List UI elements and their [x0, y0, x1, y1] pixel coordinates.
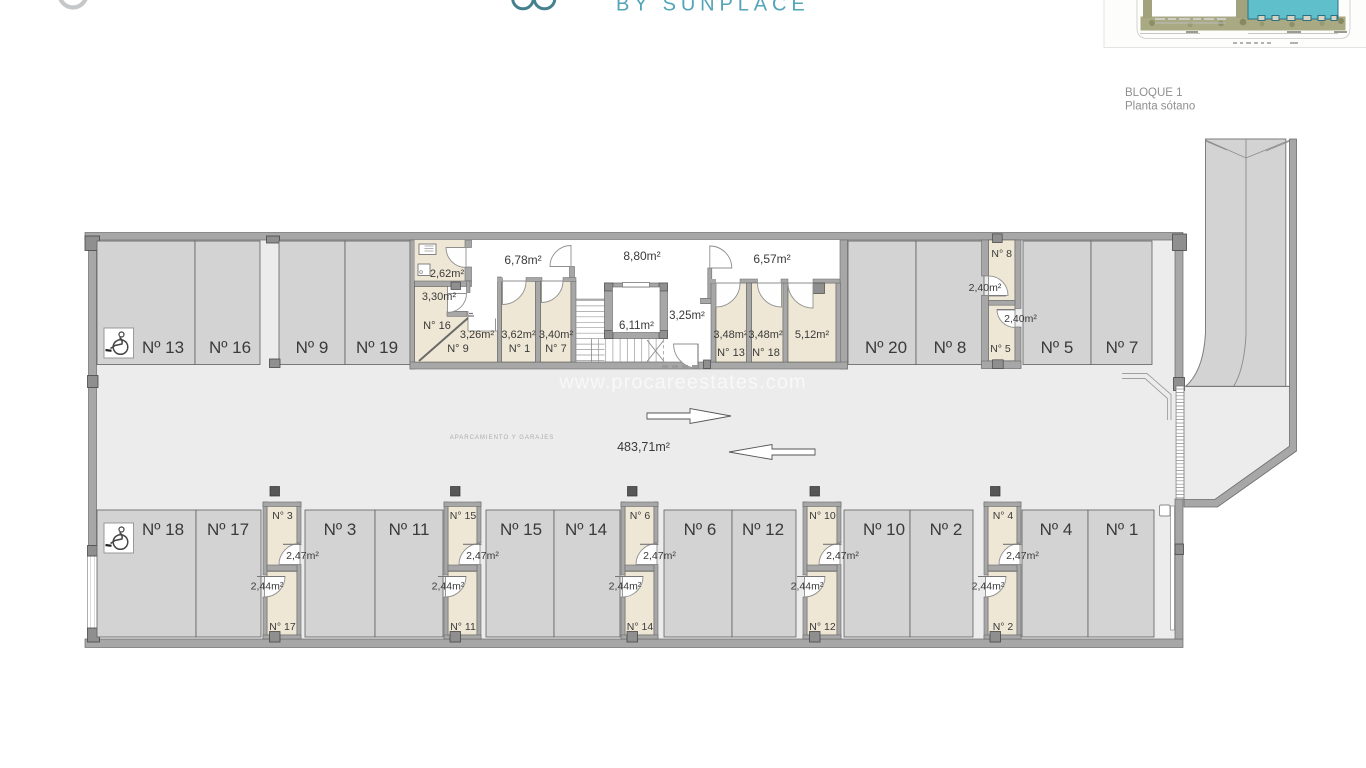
svg-text:BY SUNPLACE: BY SUNPLACE	[616, 0, 810, 16]
svg-text:N° 7: N° 7	[545, 343, 567, 355]
svg-text:483,71m²: 483,71m²	[617, 440, 670, 454]
svg-text:Nº 11: Nº 11	[389, 520, 430, 539]
svg-text:3,30m²: 3,30m²	[422, 291, 457, 303]
svg-text:Nº 17: Nº 17	[207, 520, 249, 539]
svg-text:2,40m²: 2,40m²	[1004, 313, 1037, 325]
svg-text:APARCAMIENTO Y GARAJES: APARCAMIENTO Y GARAJES	[450, 435, 555, 441]
svg-text:2,47m²: 2,47m²	[1006, 550, 1039, 562]
svg-text:N° 9: N° 9	[447, 343, 469, 355]
svg-text:Nº 9: Nº 9	[296, 338, 329, 357]
svg-text:2,44m²: 2,44m²	[972, 581, 1005, 593]
svg-text:N° 4: N° 4	[993, 510, 1014, 522]
svg-text:www.procareestates.com: www.procareestates.com	[558, 372, 807, 394]
svg-text:3,40m²: 3,40m²	[539, 329, 574, 341]
svg-text:2,47m²: 2,47m²	[466, 550, 499, 562]
svg-text:Nº 7: Nº 7	[1106, 338, 1139, 357]
svg-text:Nº 13: Nº 13	[142, 338, 184, 357]
svg-text:BLOQUE 1: BLOQUE 1	[1125, 87, 1183, 99]
svg-text:3,48m²: 3,48m²	[748, 329, 783, 341]
svg-text:Nº 18: Nº 18	[142, 520, 184, 539]
svg-text:N° 13: N° 13	[717, 347, 745, 359]
svg-text:6,11m²: 6,11m²	[619, 320, 654, 332]
svg-text:3,25m²: 3,25m²	[669, 310, 705, 322]
svg-text:Nº 10: Nº 10	[863, 520, 905, 539]
svg-text:N° 18: N° 18	[752, 347, 780, 359]
svg-text:2,47m²: 2,47m²	[643, 550, 676, 562]
svg-text:N° 6: N° 6	[630, 510, 651, 522]
svg-text:2,44m²: 2,44m²	[791, 581, 824, 593]
svg-text:2,47m²: 2,47m²	[286, 550, 319, 562]
svg-text:N° 10: N° 10	[809, 510, 836, 522]
svg-text:6,78m²: 6,78m²	[504, 253, 541, 267]
svg-text:Nº 2: Nº 2	[930, 520, 963, 539]
svg-text:3,26m²: 3,26m²	[460, 329, 495, 341]
svg-text:5,12m²: 5,12m²	[795, 329, 830, 341]
svg-text:Planta sótano: Planta sótano	[1125, 101, 1195, 113]
svg-text:Nº 1: Nº 1	[1106, 520, 1139, 539]
svg-text:N° 16: N° 16	[423, 320, 451, 332]
svg-text:Nº 3: Nº 3	[324, 520, 357, 539]
svg-text:N° 15: N° 15	[450, 510, 477, 522]
svg-text:N° 3: N° 3	[272, 510, 293, 522]
svg-text:2,44m²: 2,44m²	[609, 581, 642, 593]
svg-text:3,62m²: 3,62m²	[501, 329, 536, 341]
svg-text:3,48m²: 3,48m²	[713, 329, 748, 341]
svg-text:2,40m²: 2,40m²	[969, 282, 1002, 294]
svg-text:2,44m²: 2,44m²	[432, 581, 465, 593]
svg-text:Nº 8: Nº 8	[934, 338, 967, 357]
svg-text:2,47m²: 2,47m²	[826, 550, 859, 562]
svg-text:N° 8: N° 8	[991, 248, 1012, 260]
svg-text:Nº 15: Nº 15	[500, 520, 542, 539]
svg-text:Nº 6: Nº 6	[684, 520, 717, 539]
svg-text:N° 1: N° 1	[509, 343, 531, 355]
svg-text:2,44m²: 2,44m²	[251, 581, 284, 593]
svg-text:Nº 19: Nº 19	[356, 338, 398, 357]
svg-text:Nº 12: Nº 12	[742, 520, 784, 539]
svg-text:N° 5: N° 5	[990, 343, 1011, 355]
svg-text:8,80m²: 8,80m²	[623, 249, 660, 263]
svg-text:Nº 14: Nº 14	[565, 520, 607, 539]
svg-text:2,62m²: 2,62m²	[430, 268, 465, 280]
svg-text:Nº 5: Nº 5	[1041, 338, 1074, 357]
svg-text:Nº 4: Nº 4	[1040, 520, 1073, 539]
svg-text:Nº 16: Nº 16	[209, 338, 251, 357]
svg-text:6,57m²: 6,57m²	[753, 252, 790, 266]
svg-text:Nº 20: Nº 20	[865, 338, 907, 357]
